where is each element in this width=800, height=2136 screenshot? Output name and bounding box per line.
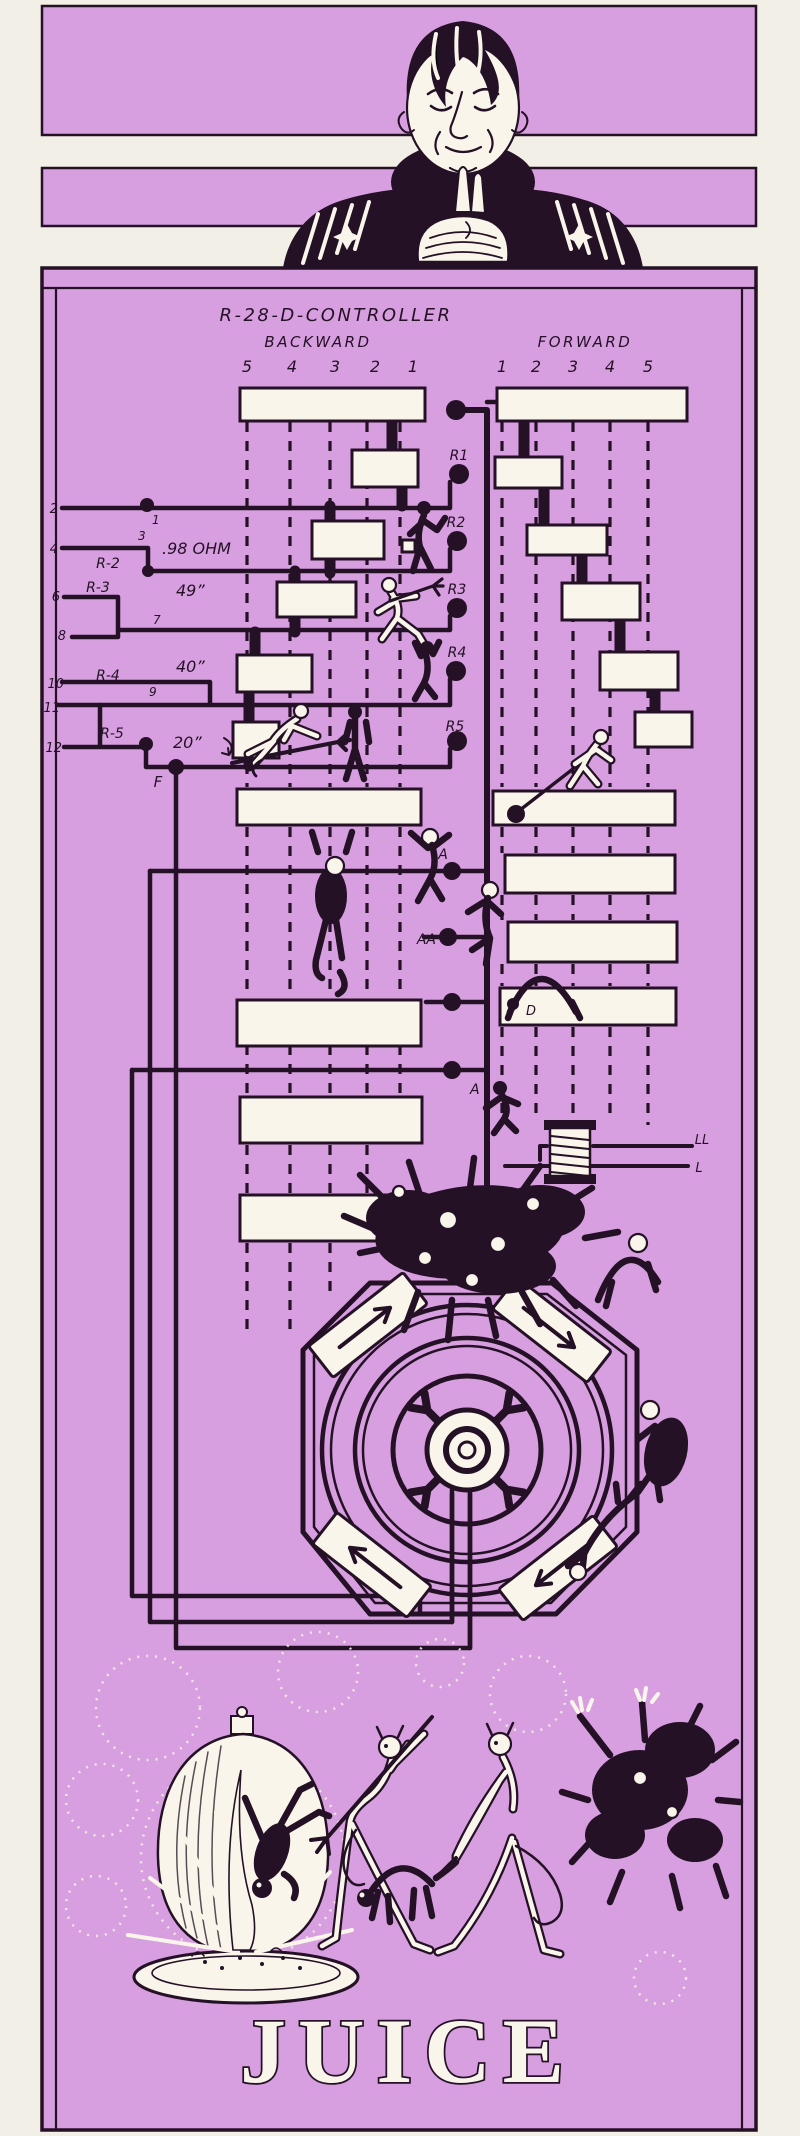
backward-step-1: 1	[408, 357, 418, 376]
terminal-12: 12	[45, 741, 62, 756]
r2-contact-dot	[447, 531, 467, 551]
r5-branch-dot	[139, 737, 153, 751]
forward-label: FORWARD	[538, 333, 633, 351]
label-resistor-r5: R-5	[100, 726, 124, 742]
magazine-cartoon-page: R-28-D-CONTROLLER BACKWARD FORWARD 5 4 3…	[0, 0, 800, 2136]
junction-7: 7	[153, 613, 161, 627]
forward-drum-bar	[497, 388, 687, 421]
controller-title: R-28-D-CONTROLLER	[219, 305, 452, 326]
tangle-lump-1	[366, 1190, 450, 1246]
forward-step-1: 1	[497, 357, 507, 376]
forward-step-3: 3	[568, 357, 578, 376]
mid-trunk-dot	[443, 993, 461, 1011]
terminal-11: 11	[43, 701, 60, 716]
tangle-head-6	[465, 1273, 479, 1287]
terminal-4: 4	[50, 542, 58, 557]
feed-dot	[168, 759, 184, 775]
junction-9: 9	[149, 685, 157, 699]
forward-step-box-5	[600, 652, 678, 690]
imp-pitchfork-head	[594, 730, 608, 744]
label-aa: AA	[416, 932, 436, 948]
label-r2: R2	[447, 515, 466, 531]
pick-head	[507, 805, 525, 823]
a-lower-dot	[443, 1061, 461, 1079]
tangle-head-3	[418, 1251, 432, 1265]
label-d: D	[526, 1004, 536, 1019]
forward-step-4: 4	[605, 357, 615, 376]
a-upper-dot	[443, 862, 461, 880]
caption-juice: JUICE	[240, 2000, 576, 2102]
pot-knob	[237, 1707, 247, 1717]
pot-stopper	[231, 1716, 253, 1734]
tangle-head-4	[526, 1197, 540, 1211]
right-segment-bar-3	[508, 922, 677, 962]
label-a-upper: A	[437, 847, 448, 863]
forward-step-2: 2	[531, 357, 541, 376]
tangle-lump-2	[495, 1185, 585, 1239]
r4-contact-dot	[446, 661, 466, 681]
imp-tool	[402, 540, 415, 552]
forward-step-box-6	[635, 712, 692, 747]
backward-step-4: 4	[287, 357, 297, 376]
r3-contact-dot	[447, 598, 467, 618]
tangle-head-1	[439, 1211, 457, 1229]
terminal-10: 10	[47, 677, 64, 692]
label-resistor-r2: R-2	[96, 556, 120, 572]
aa-dot	[439, 928, 457, 946]
label-r4: R4	[448, 645, 467, 661]
backward-step-box-5	[237, 655, 312, 692]
label-resistor-r3: R-3	[86, 580, 110, 596]
juice-controller-cartoon: R-28-D-CONTROLLER BACKWARD FORWARD 5 4 3…	[0, 0, 800, 2136]
label-r5: R5	[446, 719, 465, 735]
label-a-lower: A	[469, 1082, 480, 1098]
backward-label: BACKWARD	[264, 333, 371, 351]
backward-drum-bar	[240, 388, 425, 421]
label-r3: R3	[448, 582, 467, 598]
junction-1: 1	[152, 513, 160, 527]
label-l: L	[695, 1161, 702, 1176]
plate	[134, 1951, 358, 2003]
junction-3: 3	[138, 529, 146, 543]
forward-step-box-2	[495, 457, 562, 488]
tangle-head-2	[490, 1236, 506, 1252]
forward-step-box-3	[527, 525, 607, 555]
left-segment-bar-3	[240, 1097, 422, 1143]
backward-step-box-4	[277, 582, 356, 617]
value-98ohm: .98 OHM	[162, 539, 231, 558]
terminal-6: 6	[52, 590, 60, 605]
backward-step-5: 5	[242, 357, 252, 376]
left-segment-bar-2	[237, 1000, 421, 1046]
label-resistor-r4: R-4	[96, 668, 120, 684]
junction-3-dot	[142, 565, 154, 577]
trunk-feed-dot	[446, 400, 466, 420]
terminal-8: 8	[58, 629, 66, 644]
imp-fencer-head	[382, 578, 396, 592]
imp-witch-head	[294, 704, 308, 718]
value-49in: 49”	[176, 581, 205, 600]
tangle-head-5	[393, 1186, 405, 1198]
right-segment-bar-2	[505, 855, 675, 893]
devil2-head	[489, 1733, 511, 1755]
backward-step-3: 3	[330, 357, 340, 376]
label-ll: LL	[695, 1133, 710, 1148]
backward-step-box-2	[352, 450, 418, 487]
junction-1-dot	[140, 498, 154, 512]
hub-center	[459, 1442, 475, 1458]
label-r1: R1	[450, 448, 469, 464]
label-f: F	[154, 773, 163, 791]
backward-step-2: 2	[370, 357, 380, 376]
terminal-2: 2	[50, 502, 58, 517]
coil-body	[550, 1128, 590, 1176]
backward-step-box-3	[312, 521, 384, 559]
r1-contact-dot	[449, 464, 469, 484]
value-20in: 20”	[173, 733, 202, 752]
left-segment-bar-1	[237, 789, 421, 825]
blowout-coil	[544, 1120, 596, 1184]
forward-step-box-4	[562, 583, 640, 620]
value-40in: 40”	[176, 657, 205, 676]
forward-step-5: 5	[643, 357, 653, 376]
